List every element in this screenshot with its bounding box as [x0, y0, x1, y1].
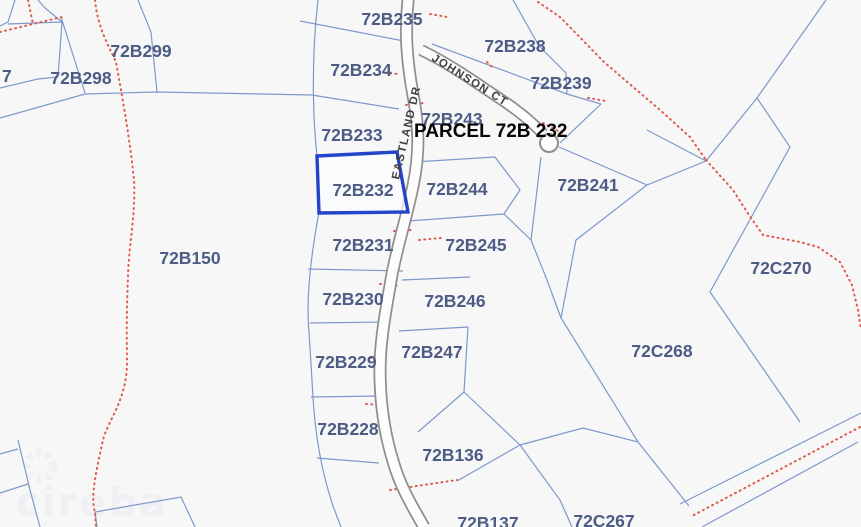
- parcel-label-72B246[interactable]: 72B246: [424, 291, 486, 311]
- parcel-label-72C268[interactable]: 72C268: [631, 341, 693, 361]
- parcel-label-72B150[interactable]: 72B150: [159, 248, 221, 268]
- parcel-label-72B239[interactable]: 72B239: [530, 73, 592, 93]
- parcel-annotation: PARCEL 72B 232: [414, 121, 567, 142]
- parcel-label-72B245[interactable]: 72B245: [445, 235, 507, 255]
- parcel-label-72B232[interactable]: 72B232: [332, 180, 394, 200]
- parcel-label-72B299[interactable]: 72B299: [110, 41, 172, 61]
- parcel-label-72B241[interactable]: 72B241: [557, 175, 619, 195]
- parcel-label-72B235[interactable]: 72B235: [361, 9, 423, 29]
- parcel-label-72B238[interactable]: 72B238: [484, 36, 546, 56]
- parcel-label-72C267[interactable]: 72C267: [573, 511, 634, 527]
- parcel-label-72C270[interactable]: 72C270: [750, 258, 812, 278]
- parcel-label-72B234[interactable]: 72B234: [330, 60, 392, 80]
- parcel-label-edge-clipped: 7: [2, 66, 12, 86]
- parcel-map[interactable]: cireba: [0, 0, 861, 527]
- parcel-label-72B229[interactable]: 72B229: [315, 352, 377, 372]
- parcel-label-72B136[interactable]: 72B136: [422, 445, 484, 465]
- parcel-label-72B137[interactable]: 72B137: [457, 513, 518, 527]
- parcel-label-72B244[interactable]: 72B244: [426, 179, 488, 199]
- map-canvas[interactable]: cireba: [0, 0, 861, 527]
- parcel-label-72B231[interactable]: 72B231: [332, 235, 394, 255]
- parcel-label-72B298[interactable]: 72B298: [50, 68, 112, 88]
- parcel-label-72B247[interactable]: 72B247: [401, 342, 462, 362]
- parcel-label-72B230[interactable]: 72B230: [322, 289, 384, 309]
- parcel-label-72B233[interactable]: 72B233: [321, 125, 383, 145]
- parcel-label-72B228[interactable]: 72B228: [317, 419, 379, 439]
